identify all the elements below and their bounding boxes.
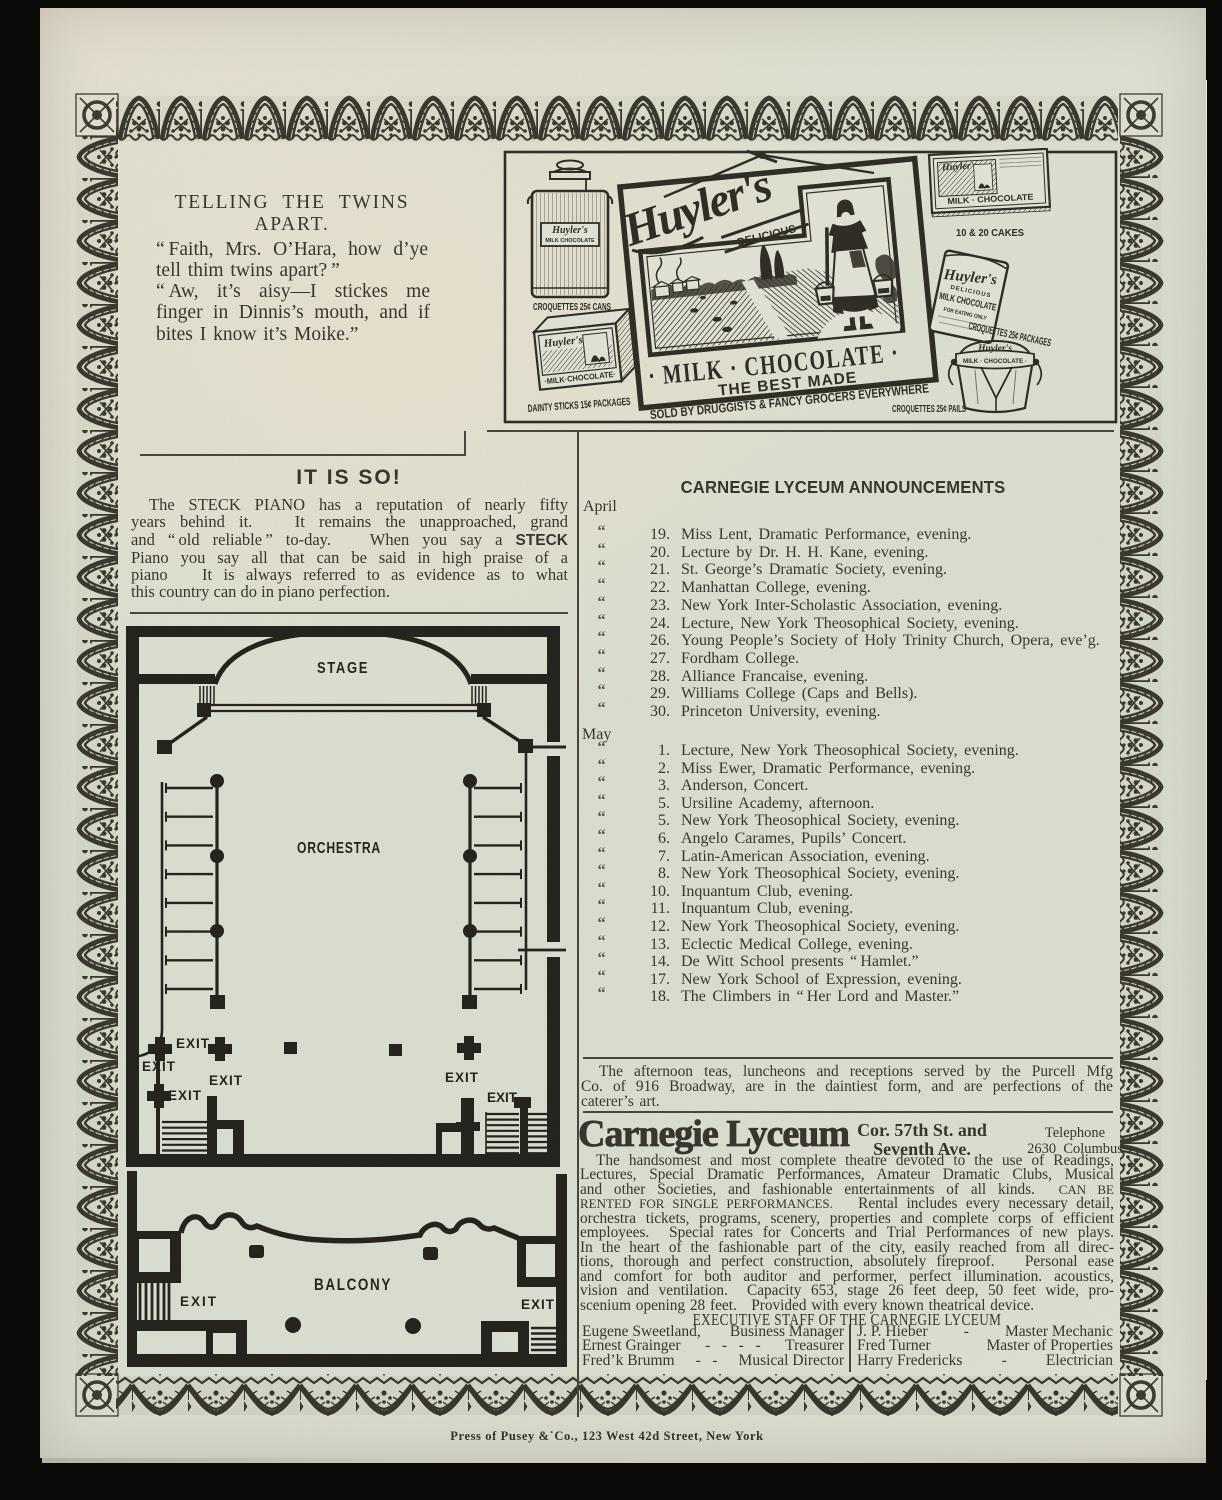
svg-text:Huyler's: Huyler's xyxy=(977,344,1012,354)
svg-text:ORCHESTRA: ORCHESTRA xyxy=(297,840,381,857)
svg-text:EXIT: EXIT xyxy=(180,1294,218,1309)
svg-text:EXIT: EXIT xyxy=(445,1070,479,1085)
svg-text:EXIT: EXIT xyxy=(209,1073,243,1088)
svg-text:Huyler's: Huyler's xyxy=(551,225,588,236)
svg-text:BALCONY: BALCONY xyxy=(314,1276,392,1294)
svg-text:10 & 20 CAKES: 10 & 20 CAKES xyxy=(956,227,1024,239)
svg-text:DAINTY STICKS 15¢ PACKAGES: DAINTY STICKS 15¢ PACKAGES xyxy=(527,396,631,415)
svg-text:EXIT: EXIT xyxy=(521,1297,555,1312)
svg-text:Huyler's: Huyler's xyxy=(941,160,978,173)
svg-text:EXIT: EXIT xyxy=(176,1036,210,1051)
svg-text:EXIT: EXIT xyxy=(168,1088,202,1103)
svg-text:EXIT: EXIT xyxy=(487,1090,518,1105)
svg-text:MILK CHOCOLATE: MILK CHOCOLATE xyxy=(545,238,595,244)
svg-text:MILK · CHOCOLATE ·: MILK · CHOCOLATE · xyxy=(963,359,1027,365)
svg-text:EXIT: EXIT xyxy=(142,1059,176,1074)
svg-text:CROQUETTES 25¢ PAILS: CROQUETTES 25¢ PAILS xyxy=(892,403,966,415)
svg-text:STAGE: STAGE xyxy=(317,660,369,677)
